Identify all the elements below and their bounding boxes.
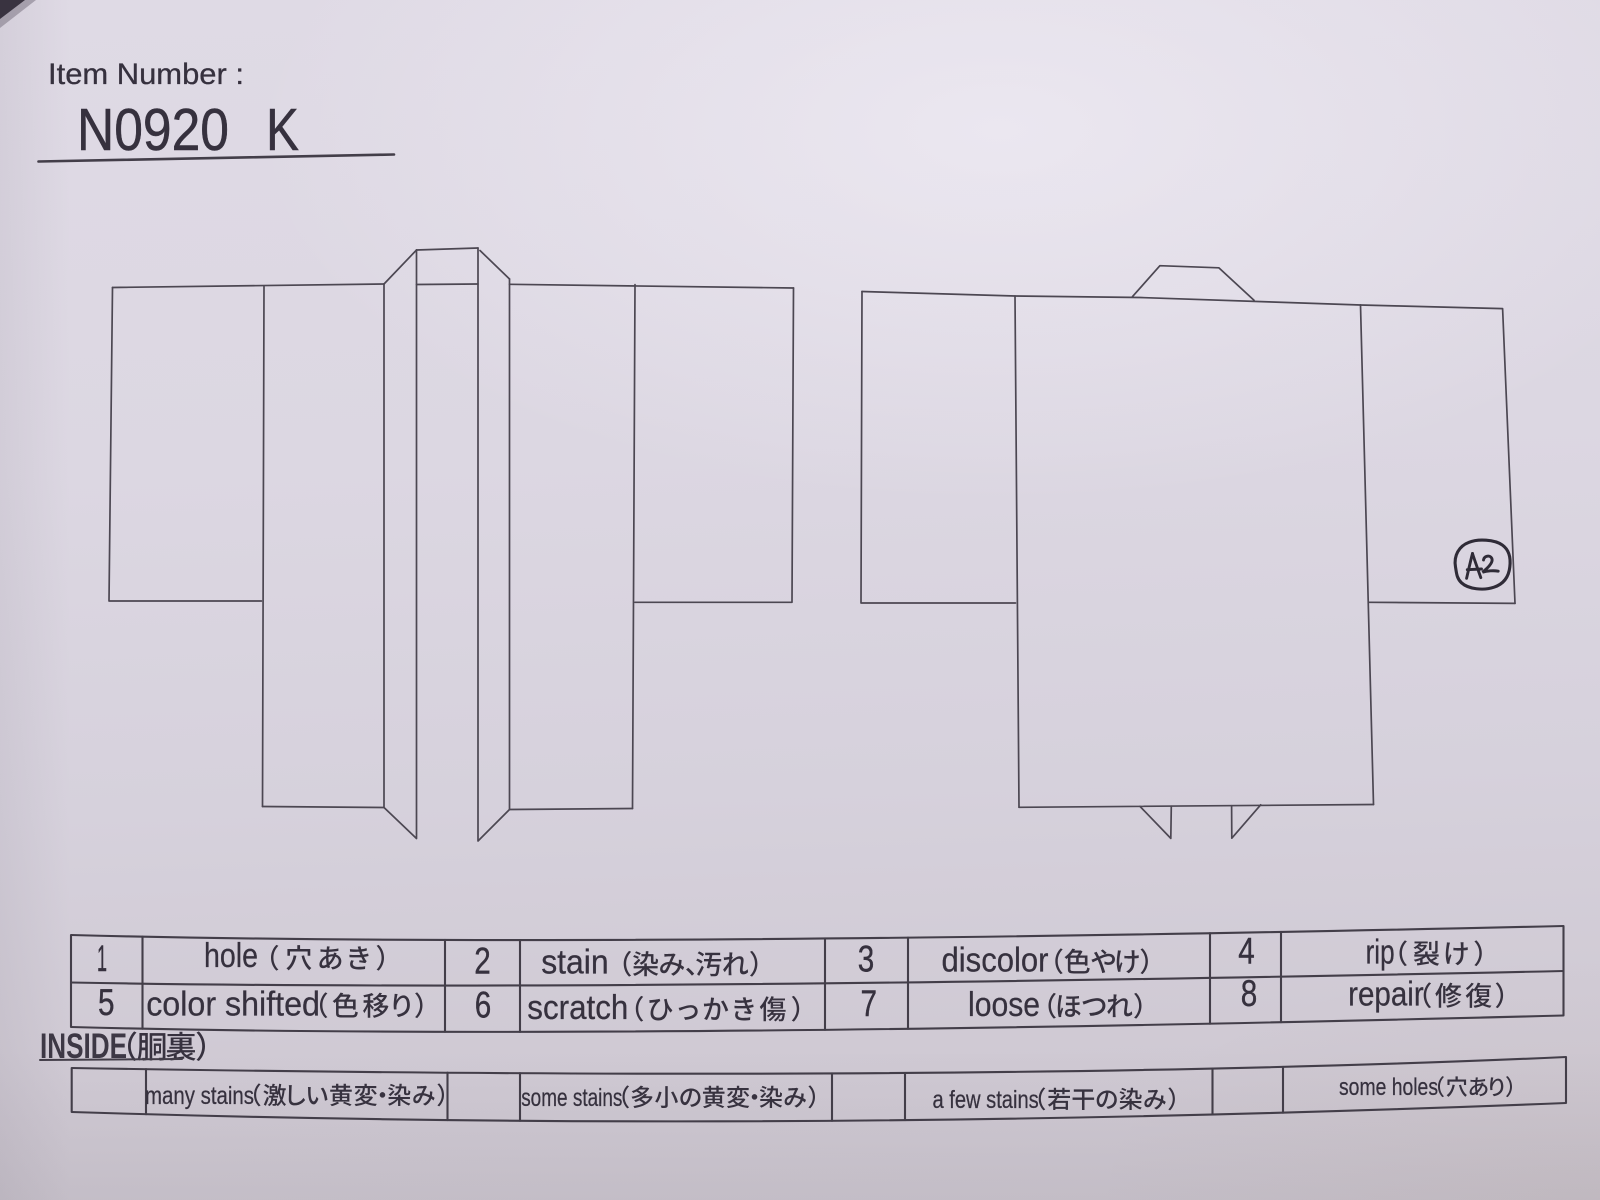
svg-text:repair: repair (1348, 975, 1424, 1013)
svg-text:K: K (266, 97, 299, 163)
svg-text:3: 3 (858, 939, 875, 980)
svg-text:rip: rip (1366, 934, 1395, 972)
svg-text:stain: stain (541, 944, 609, 982)
svg-text:some stains: some stains (521, 1084, 622, 1112)
svg-text:1: 1 (97, 938, 107, 979)
svg-text:5: 5 (98, 982, 115, 1023)
svg-text:hole: hole (204, 937, 258, 975)
svg-text:2: 2 (474, 941, 491, 982)
svg-text:some holes: some holes (1339, 1074, 1438, 1101)
svg-text:loose: loose (968, 986, 1040, 1024)
svg-text:discolor: discolor (942, 942, 1049, 980)
svg-text:color shifted: color shifted (146, 986, 320, 1024)
svg-text:Item Number :: Item Number : (48, 58, 244, 91)
svg-text:4: 4 (1238, 931, 1255, 972)
svg-text:a few stains: a few stains (933, 1086, 1039, 1114)
svg-text:6: 6 (475, 985, 492, 1026)
svg-text:7: 7 (860, 983, 877, 1024)
svg-text:N0920: N0920 (77, 97, 229, 163)
svg-text:scratch: scratch (527, 989, 628, 1027)
svg-text:8: 8 (1241, 973, 1258, 1014)
svg-text:many stains: many stains (145, 1082, 254, 1110)
